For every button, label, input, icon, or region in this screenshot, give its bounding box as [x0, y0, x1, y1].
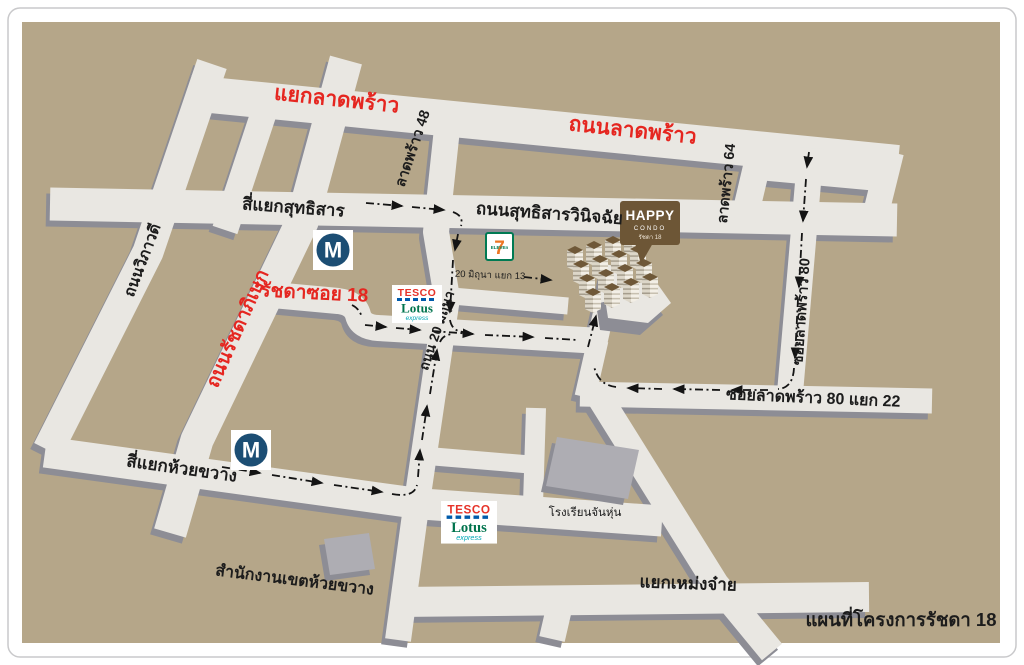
- seven-eleven-icon: 7 ELEVEn: [486, 233, 513, 260]
- mrt-station-icon-sutthisan: [313, 230, 353, 270]
- happy-sign-line2: CONDO: [634, 226, 666, 232]
- map-page: M TESCO Lotus express HAPPY CONDO รัชดา …: [0, 0, 1024, 665]
- happy-sign-line1: HAPPY: [625, 208, 674, 223]
- mrt-station-icon-huai-khwang: [231, 430, 271, 470]
- happy-sign-line3: รัชดา 18: [639, 234, 663, 241]
- label-school: โรงเรียนจันหุ่น: [549, 505, 622, 519]
- map-caption: แผนที่โครงการรัชดา 18: [805, 606, 996, 630]
- label-yaek-meng-jai: แยกเหม่งจ๋าย: [639, 572, 737, 594]
- tesco-lotus-icon-ratchada-soi-18: [392, 285, 442, 323]
- location-map: M TESCO Lotus express HAPPY CONDO รัชดา …: [0, 0, 1024, 665]
- seven-eleven-word: ELEVEn: [491, 245, 509, 250]
- tesco-lotus-icon-huai-khwang: [441, 501, 497, 544]
